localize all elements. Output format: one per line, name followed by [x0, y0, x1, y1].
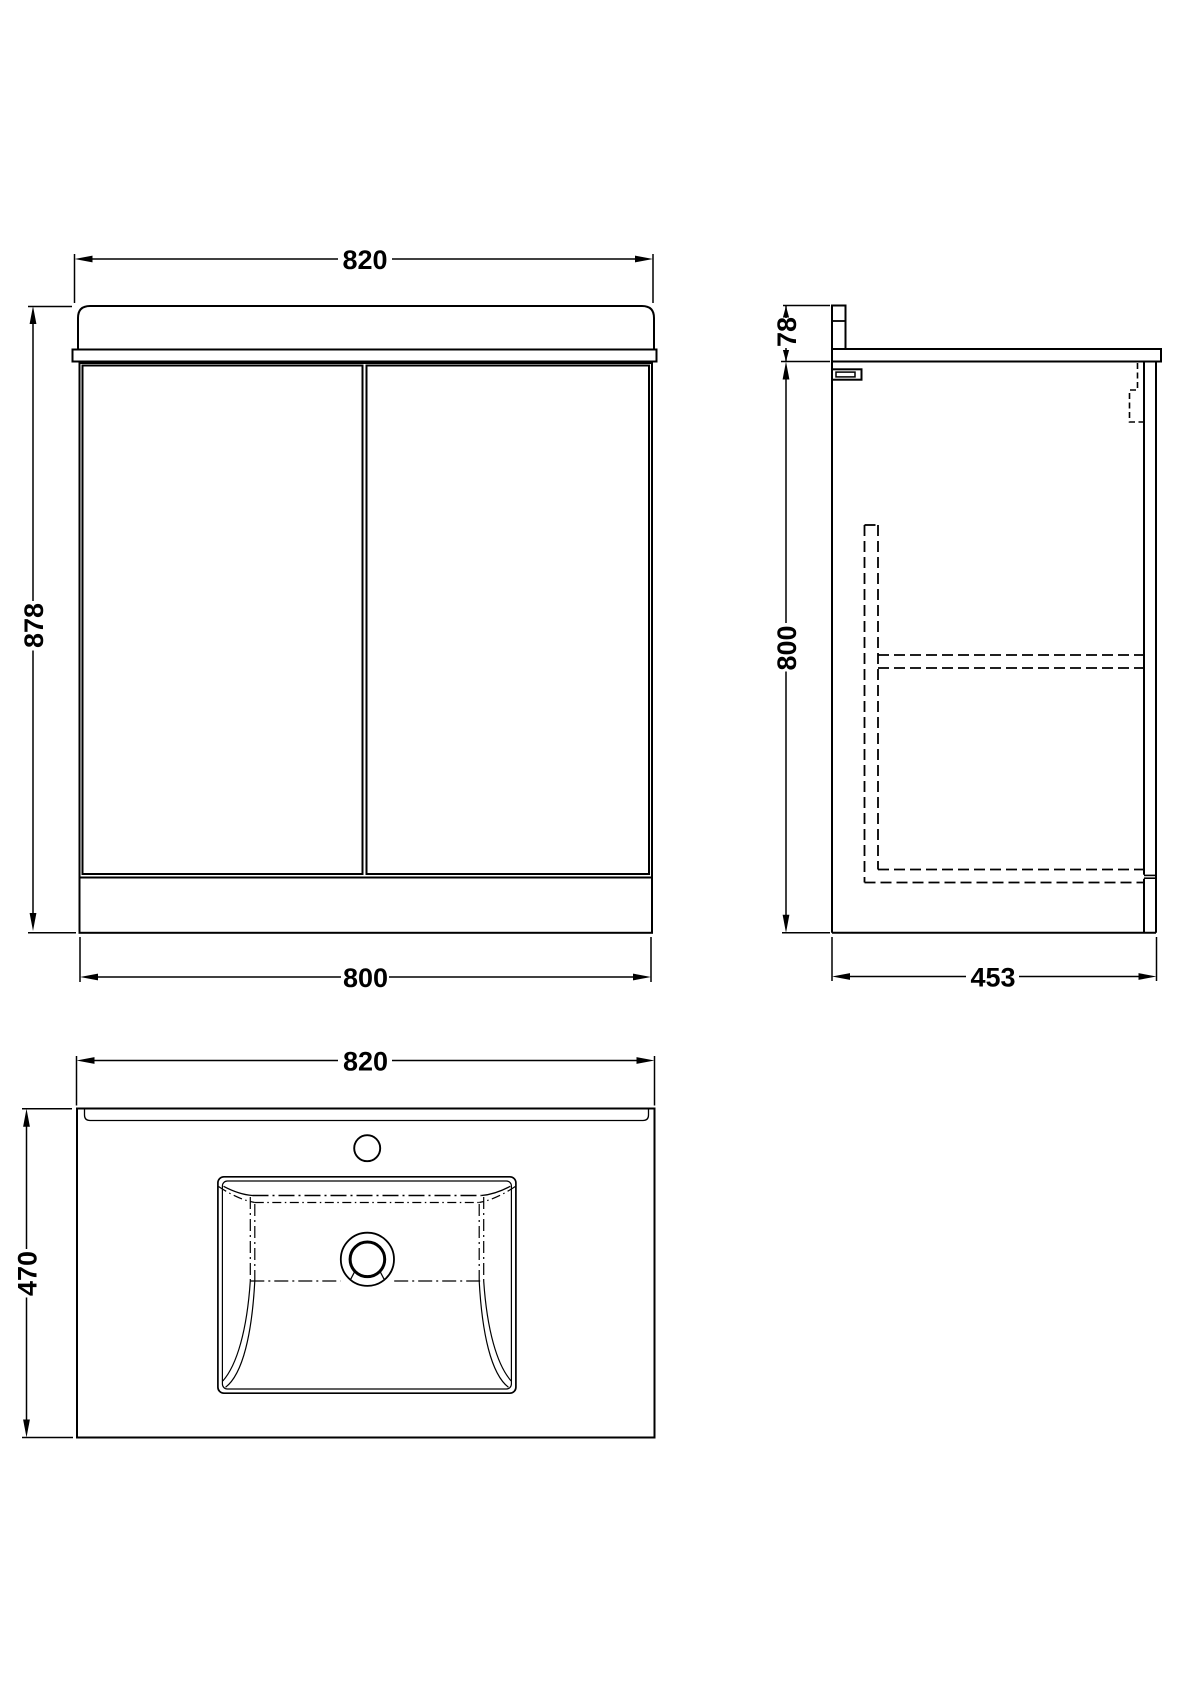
- svg-text:820: 820: [343, 1046, 388, 1076]
- svg-text:800: 800: [772, 625, 802, 670]
- svg-text:800: 800: [343, 963, 388, 993]
- svg-text:78: 78: [772, 317, 802, 347]
- svg-text:878: 878: [19, 603, 49, 648]
- svg-text:453: 453: [970, 962, 1015, 992]
- svg-text:470: 470: [12, 1251, 42, 1296]
- svg-text:820: 820: [342, 245, 387, 275]
